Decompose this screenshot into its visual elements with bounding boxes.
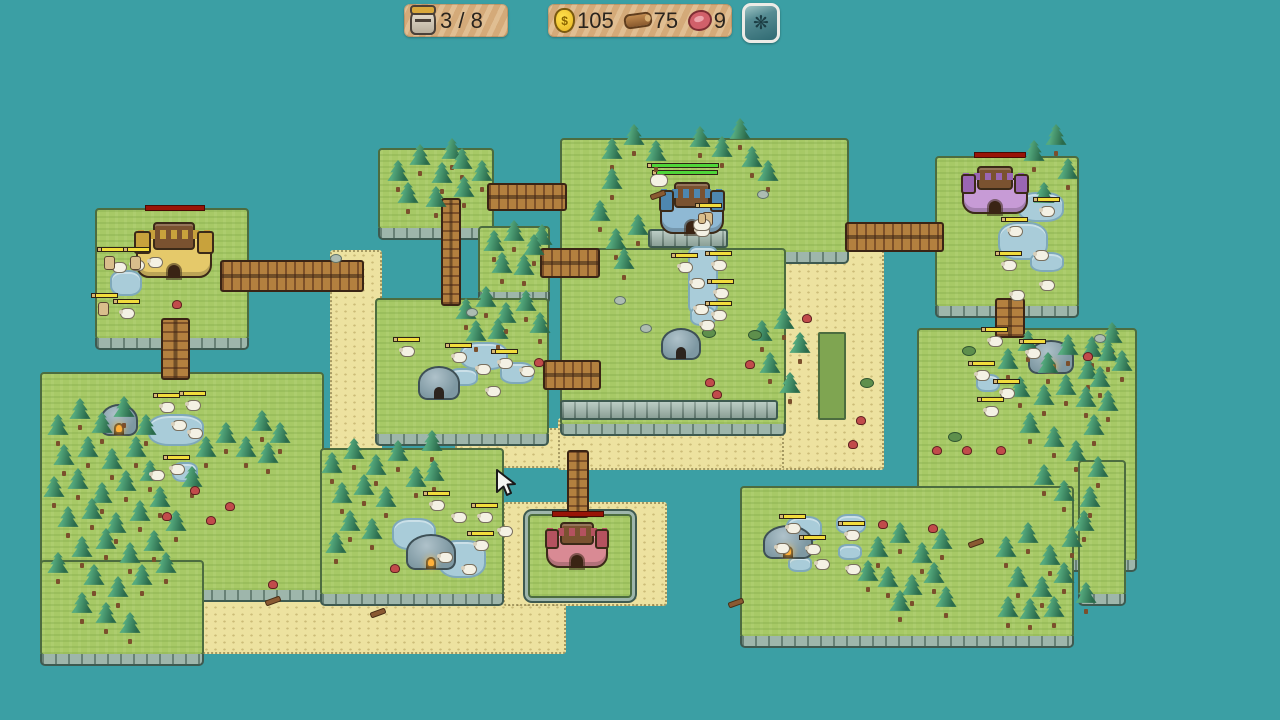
health-bar bbox=[163, 455, 190, 460]
helmet-icon bbox=[410, 7, 436, 35]
bar-fill bbox=[804, 535, 826, 540]
tree-canopy bbox=[420, 430, 444, 458]
sheep bbox=[462, 564, 477, 575]
pine-tree bbox=[934, 586, 958, 618]
pine-tree bbox=[528, 312, 552, 344]
tree-trunk bbox=[898, 549, 902, 554]
health-bar bbox=[799, 535, 826, 540]
tree-canopy bbox=[46, 414, 70, 442]
sheep bbox=[520, 366, 535, 377]
tree-canopy bbox=[324, 532, 348, 560]
tree-canopy bbox=[588, 200, 612, 228]
sheep bbox=[806, 544, 821, 555]
tree-trunk bbox=[104, 629, 108, 634]
mushroom bbox=[802, 314, 812, 323]
castle-purple[interactable] bbox=[962, 166, 1028, 214]
tree-canopy bbox=[154, 552, 178, 580]
sheep-head bbox=[1033, 252, 1037, 256]
bar-fill bbox=[986, 327, 1008, 332]
sheep bbox=[188, 428, 203, 439]
pine-tree bbox=[154, 552, 178, 584]
rock bbox=[330, 254, 342, 263]
pine-tree bbox=[66, 468, 90, 500]
sheep bbox=[498, 526, 513, 537]
health-bar bbox=[153, 393, 180, 398]
tree-trunk bbox=[418, 171, 422, 176]
tree-trunk bbox=[224, 449, 228, 454]
pine-tree bbox=[600, 138, 624, 170]
tree-canopy bbox=[1044, 124, 1068, 152]
tree-trunk bbox=[140, 591, 144, 596]
pine-tree bbox=[396, 182, 420, 214]
tree-trunk bbox=[720, 163, 724, 168]
pine-tree bbox=[490, 252, 514, 284]
tree-canopy bbox=[56, 506, 80, 534]
sheep-head bbox=[171, 422, 175, 426]
tree-trunk bbox=[396, 467, 400, 472]
health-bar bbox=[91, 293, 118, 298]
pine-tree bbox=[600, 168, 624, 200]
bar-fill bbox=[158, 393, 180, 398]
tree-canopy bbox=[1086, 456, 1110, 484]
sheep-head bbox=[689, 280, 693, 284]
health-bar bbox=[981, 327, 1008, 332]
bridge-topmid-east[interactable] bbox=[487, 183, 567, 211]
sheep-head bbox=[1001, 262, 1005, 266]
tree-canopy bbox=[1074, 386, 1098, 414]
enemy-spawn-bar bbox=[974, 152, 1026, 158]
tree-canopy bbox=[94, 528, 118, 556]
health-bar bbox=[838, 521, 865, 526]
bush bbox=[948, 432, 962, 442]
tree-trunk bbox=[654, 167, 658, 172]
pine-tree bbox=[360, 518, 384, 550]
tree-canopy bbox=[996, 348, 1020, 376]
stone-hut[interactable] bbox=[661, 328, 701, 360]
sheep-head bbox=[497, 528, 501, 532]
tree-canopy bbox=[1064, 440, 1088, 468]
tree-canopy bbox=[1056, 158, 1080, 186]
bar-fill bbox=[982, 397, 1004, 402]
tree-canopy bbox=[486, 318, 510, 346]
health-bar bbox=[705, 251, 732, 256]
health-bar bbox=[471, 503, 498, 508]
gold-count: 105 bbox=[577, 8, 614, 34]
sheep-head bbox=[461, 566, 465, 570]
island-cliff-edge bbox=[40, 654, 204, 666]
bar-fill bbox=[676, 253, 698, 258]
sheep bbox=[975, 370, 990, 381]
sheep bbox=[478, 512, 493, 523]
soldier-unit bbox=[98, 302, 109, 316]
pine-tree bbox=[1052, 562, 1076, 594]
pine-tree bbox=[94, 602, 118, 634]
pine-tree bbox=[1042, 426, 1066, 458]
sheep bbox=[1002, 260, 1017, 271]
knight-body bbox=[698, 213, 706, 224]
pine-tree bbox=[1018, 598, 1042, 630]
dirt-plot bbox=[818, 332, 846, 420]
tree-trunk bbox=[632, 151, 636, 156]
health-bar bbox=[423, 491, 450, 496]
hut-door bbox=[676, 347, 686, 359]
tree-canopy bbox=[1052, 562, 1076, 590]
horse bbox=[650, 174, 668, 187]
bar-fill bbox=[1000, 251, 1022, 256]
sheep bbox=[452, 352, 467, 363]
sheep bbox=[474, 540, 489, 551]
sheep bbox=[438, 552, 453, 563]
bar-fill bbox=[1024, 339, 1046, 344]
sheep-head bbox=[1009, 292, 1013, 296]
wood-count: 75 bbox=[654, 8, 678, 34]
pine-tree bbox=[1018, 412, 1042, 444]
sheep-head bbox=[147, 259, 151, 263]
island-cliff-edge bbox=[560, 424, 786, 436]
tree-canopy bbox=[320, 452, 344, 480]
sheep-head bbox=[845, 566, 849, 570]
pine-tree bbox=[888, 590, 912, 622]
pine-tree bbox=[1056, 158, 1080, 190]
tree-trunk bbox=[244, 463, 248, 468]
mushroom bbox=[1083, 352, 1093, 361]
tree-canopy bbox=[452, 176, 476, 204]
pine-tree bbox=[408, 144, 432, 176]
game-screen: 3 / 8 $ 105 75 9 ❋ bbox=[0, 0, 1280, 720]
castle-tower-left bbox=[961, 174, 976, 194]
tree-canopy bbox=[600, 168, 624, 196]
tree-trunk bbox=[100, 439, 104, 444]
sheep bbox=[775, 543, 790, 554]
castle-red[interactable] bbox=[546, 522, 608, 568]
pine-tree bbox=[130, 564, 154, 596]
mushroom bbox=[856, 416, 866, 425]
sheep-head bbox=[844, 532, 848, 536]
sheep-head bbox=[774, 545, 778, 549]
pine-tree bbox=[1064, 440, 1088, 472]
tree-canopy bbox=[106, 576, 130, 604]
enemy-spawn-bar bbox=[552, 511, 604, 517]
pine-tree bbox=[788, 332, 812, 364]
sheep bbox=[160, 402, 175, 413]
tree-trunk bbox=[636, 241, 640, 246]
tree-trunk bbox=[266, 469, 270, 474]
sheep bbox=[845, 530, 860, 541]
sheep bbox=[984, 406, 999, 417]
mouse-cursor bbox=[494, 468, 516, 503]
mushroom bbox=[878, 520, 888, 529]
sheep bbox=[476, 364, 491, 375]
castle-gate bbox=[168, 265, 180, 278]
sheep-head bbox=[451, 514, 455, 518]
bar-fill bbox=[998, 379, 1020, 384]
bridge-topleft-east[interactable] bbox=[220, 260, 364, 292]
pine-tree bbox=[46, 414, 70, 446]
castle-gate bbox=[571, 555, 583, 568]
sheep-head bbox=[475, 366, 479, 370]
mushroom bbox=[206, 516, 216, 525]
tree-trunk bbox=[1042, 411, 1046, 416]
tree-canopy bbox=[996, 596, 1020, 624]
sheep-head bbox=[677, 264, 681, 268]
health-bar bbox=[1019, 339, 1046, 344]
pine-tree bbox=[756, 160, 780, 192]
tree-canopy bbox=[66, 468, 90, 496]
tree-canopy bbox=[82, 564, 106, 592]
pine-tree bbox=[612, 248, 636, 280]
pine-tree bbox=[1110, 350, 1134, 382]
mushroom bbox=[962, 446, 972, 455]
bar-fill bbox=[843, 521, 865, 526]
sheep-head bbox=[187, 430, 191, 434]
tree-trunk bbox=[1120, 377, 1124, 382]
campfire-glow bbox=[428, 559, 434, 566]
stone-hut[interactable] bbox=[418, 366, 460, 400]
soldier-unit bbox=[130, 256, 141, 270]
sheep bbox=[452, 512, 467, 523]
island-cliff-edge bbox=[320, 594, 504, 606]
pine-tree bbox=[1074, 582, 1098, 614]
sheep bbox=[1008, 226, 1023, 237]
sheep-head bbox=[169, 466, 173, 470]
tree-canopy bbox=[118, 612, 142, 640]
pine-tree bbox=[342, 438, 366, 470]
pine-tree bbox=[76, 436, 100, 468]
pine-tree bbox=[80, 498, 104, 530]
health-bar bbox=[707, 279, 734, 284]
tree-trunk bbox=[1042, 491, 1046, 496]
mushroom bbox=[390, 564, 400, 573]
meat-icon bbox=[688, 10, 712, 31]
tree-canopy bbox=[1018, 412, 1042, 440]
tree-canopy bbox=[1082, 414, 1106, 442]
pine-tree bbox=[70, 592, 94, 624]
tree-canopy bbox=[994, 536, 1018, 564]
sheep-head bbox=[437, 554, 441, 558]
sheep bbox=[186, 400, 201, 411]
bridge-central-west-lower[interactable] bbox=[543, 360, 601, 390]
bar-fill bbox=[712, 279, 734, 284]
bridge-topleft-south[interactable] bbox=[161, 318, 190, 380]
tree-canopy bbox=[342, 438, 366, 466]
tree-canopy bbox=[1022, 140, 1046, 168]
tree-canopy bbox=[352, 474, 376, 502]
pine-tree bbox=[888, 522, 912, 554]
castle-tower-right bbox=[595, 529, 610, 549]
tree-trunk bbox=[1092, 441, 1096, 446]
sheep bbox=[714, 288, 729, 299]
tree-trunk bbox=[370, 545, 374, 550]
sheep-head bbox=[473, 542, 477, 546]
health-bar bbox=[705, 301, 732, 306]
sheep bbox=[150, 470, 165, 481]
tree-canopy bbox=[42, 476, 66, 504]
tree-canopy bbox=[1060, 526, 1084, 554]
bridge-red-castle-north[interactable] bbox=[567, 450, 589, 518]
bush bbox=[860, 378, 874, 388]
pine-tree bbox=[1042, 596, 1066, 628]
sheep-head bbox=[1007, 228, 1011, 232]
pine-tree bbox=[688, 126, 712, 158]
tree-trunk bbox=[1064, 401, 1068, 406]
sheep bbox=[486, 386, 501, 397]
health-bar bbox=[467, 531, 494, 536]
gear-icon: ❋ bbox=[753, 12, 769, 35]
bar-fill bbox=[973, 361, 995, 366]
health-bar bbox=[779, 514, 806, 519]
pine-tree bbox=[1022, 140, 1046, 172]
tree-canopy bbox=[94, 602, 118, 630]
enemy-spawn-bar bbox=[145, 205, 205, 211]
castle-tower-right bbox=[197, 231, 214, 254]
island-cliff-edge bbox=[740, 636, 1074, 648]
tree-trunk bbox=[204, 463, 208, 468]
tree-trunk bbox=[1066, 185, 1070, 190]
tree-canopy bbox=[1052, 480, 1076, 508]
bush bbox=[748, 330, 762, 340]
rock bbox=[614, 296, 626, 305]
sheep-head bbox=[477, 514, 481, 518]
mushroom bbox=[848, 440, 858, 449]
castle-tower-left bbox=[545, 529, 560, 549]
tree-trunk bbox=[174, 537, 178, 542]
bar-fill bbox=[1038, 197, 1060, 202]
tree-canopy bbox=[80, 498, 104, 526]
sheep bbox=[120, 308, 135, 319]
tree-trunk bbox=[1006, 623, 1010, 628]
pine-tree bbox=[94, 528, 118, 560]
sheep-head bbox=[497, 360, 501, 364]
sheep-head bbox=[185, 402, 189, 406]
health-bar bbox=[123, 247, 150, 252]
sheep-head bbox=[519, 368, 523, 372]
bar-fill bbox=[472, 531, 494, 536]
pine-tree bbox=[1006, 566, 1030, 598]
tree-canopy bbox=[756, 160, 780, 188]
sheep-head bbox=[149, 472, 153, 476]
pine-tree bbox=[452, 176, 476, 208]
sheep-head bbox=[485, 388, 489, 392]
tree-trunk bbox=[1028, 439, 1032, 444]
tree-canopy bbox=[1110, 350, 1134, 378]
tree-canopy bbox=[396, 182, 420, 210]
tree-trunk bbox=[1066, 361, 1070, 366]
castle-blue[interactable] bbox=[660, 182, 724, 234]
health-bar bbox=[671, 253, 698, 258]
health-bar bbox=[968, 361, 995, 366]
tree-trunk bbox=[104, 555, 108, 560]
health-bar bbox=[393, 337, 420, 342]
settings-button[interactable]: ❋ bbox=[742, 3, 780, 43]
health-bar bbox=[993, 379, 1020, 384]
pine-tree bbox=[1060, 526, 1084, 558]
bar-fill bbox=[784, 514, 806, 519]
tree-trunk bbox=[898, 617, 902, 622]
sheep bbox=[430, 500, 445, 511]
tree-trunk bbox=[598, 227, 602, 232]
rock bbox=[640, 324, 652, 333]
mushroom bbox=[225, 502, 235, 511]
resources-panel: $ 105 75 9 bbox=[548, 4, 732, 37]
tree-trunk bbox=[414, 493, 418, 498]
tree-canopy bbox=[404, 466, 428, 494]
tree-canopy bbox=[330, 482, 354, 510]
tree-trunk bbox=[1054, 151, 1058, 156]
bar-fill bbox=[398, 337, 420, 342]
tree-canopy bbox=[76, 436, 100, 464]
stone-wall bbox=[560, 400, 778, 420]
castle-tower-right bbox=[710, 190, 725, 212]
tree-canopy bbox=[1042, 596, 1066, 624]
health-bar bbox=[97, 247, 124, 252]
tree-canopy bbox=[934, 586, 958, 614]
tree-trunk bbox=[1032, 167, 1036, 172]
health-bar bbox=[179, 391, 206, 396]
mushroom bbox=[928, 524, 938, 533]
pine-tree bbox=[320, 452, 344, 484]
sheep bbox=[700, 320, 715, 331]
sheep bbox=[498, 358, 513, 369]
meat-count: 9 bbox=[714, 8, 726, 34]
pond bbox=[838, 544, 862, 560]
tree-trunk bbox=[164, 579, 168, 584]
pine-tree bbox=[996, 596, 1020, 628]
pine-tree bbox=[114, 470, 138, 502]
tree-canopy bbox=[1032, 384, 1056, 412]
sheep-head bbox=[1025, 350, 1029, 354]
tree-trunk bbox=[1106, 417, 1110, 422]
tree-canopy bbox=[68, 398, 92, 426]
bar-fill bbox=[96, 293, 118, 298]
player-knight bbox=[693, 211, 711, 231]
pine-tree bbox=[56, 506, 80, 538]
tree-trunk bbox=[80, 619, 84, 624]
sheep-head bbox=[693, 306, 697, 310]
sheep bbox=[846, 564, 861, 575]
tree-trunk bbox=[1084, 609, 1088, 614]
tree-trunk bbox=[1026, 549, 1030, 554]
bridge-central-topright[interactable] bbox=[845, 222, 944, 252]
sheep bbox=[148, 257, 163, 268]
sheep bbox=[172, 420, 187, 431]
tree-trunk bbox=[944, 613, 948, 618]
sheep-head bbox=[451, 354, 455, 358]
sheep bbox=[815, 559, 830, 570]
health-bar bbox=[977, 397, 1004, 402]
tree-trunk bbox=[940, 555, 944, 560]
pine-tree bbox=[486, 318, 510, 350]
tree-trunk bbox=[406, 209, 410, 214]
tree-trunk bbox=[334, 559, 338, 564]
tree-canopy bbox=[528, 312, 552, 340]
sheep-head bbox=[711, 312, 715, 316]
tree-trunk bbox=[384, 513, 388, 518]
sheep-head bbox=[987, 338, 991, 342]
sheep-head bbox=[713, 290, 717, 294]
tree-canopy bbox=[1006, 566, 1030, 594]
tree-trunk bbox=[1052, 453, 1056, 458]
bar-fill bbox=[102, 247, 124, 252]
mushroom bbox=[932, 446, 942, 455]
sheep-head bbox=[814, 561, 818, 565]
pine-tree bbox=[194, 436, 218, 468]
bar-fill bbox=[118, 299, 140, 304]
pine-tree bbox=[118, 612, 142, 644]
pine-tree bbox=[644, 140, 668, 172]
pine-tree bbox=[1016, 522, 1040, 554]
tree-trunk bbox=[462, 203, 466, 208]
sheep-head bbox=[983, 408, 987, 412]
